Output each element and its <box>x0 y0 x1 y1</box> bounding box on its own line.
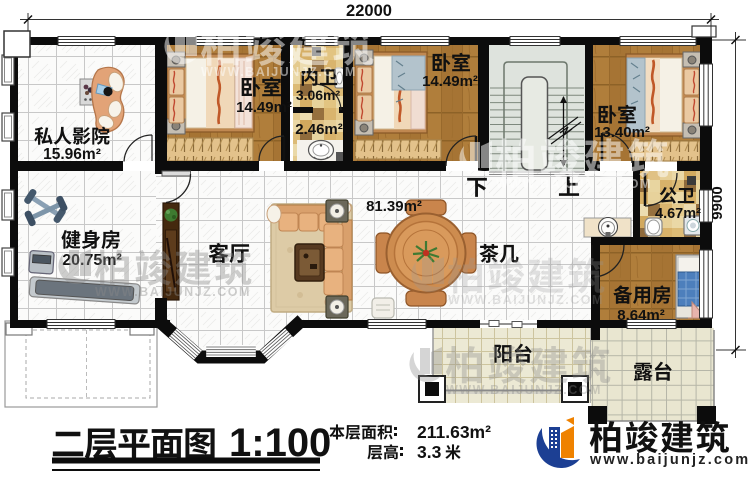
svg-text:81.39m²: 81.39m² <box>366 198 422 215</box>
svg-text:WWW.BAIJUNJZ.COM: WWW.BAIJUNJZ.COM <box>496 177 652 191</box>
svg-text:WWW.BAIJUNJZ.COM: WWW.BAIJUNJZ.COM <box>446 383 602 397</box>
svg-text:15.96m²: 15.96m² <box>43 146 101 163</box>
svg-text:211.63m²: 211.63m² <box>417 422 491 442</box>
svg-text:4.67m²: 4.67m² <box>655 206 701 222</box>
svg-text:9900: 9900 <box>709 186 726 219</box>
svg-text:22000: 22000 <box>346 2 392 20</box>
svg-text:WWW.BAIJUNJZ.COM: WWW.BAIJUNJZ.COM <box>201 65 357 79</box>
svg-text:8.64m²: 8.64m² <box>617 307 665 324</box>
svg-text:2.46m²: 2.46m² <box>295 121 343 138</box>
svg-text:3.06m²: 3.06m² <box>296 87 341 103</box>
svg-text:3.3: 3.3 <box>417 442 442 462</box>
svg-text:14.49m²: 14.49m² <box>422 73 478 90</box>
svg-text:WWW.BAIJUNJZ.COM: WWW.BAIJUNJZ.COM <box>448 293 604 307</box>
svg-text:WWW.BAIJUNJZ.COM: WWW.BAIJUNJZ.COM <box>95 285 251 299</box>
svg-text:14.49m²: 14.49m² <box>236 99 292 116</box>
svg-text:www.baijunjz.com: www.baijunjz.com <box>589 452 750 468</box>
svg-text:13.40m²: 13.40m² <box>594 124 650 141</box>
